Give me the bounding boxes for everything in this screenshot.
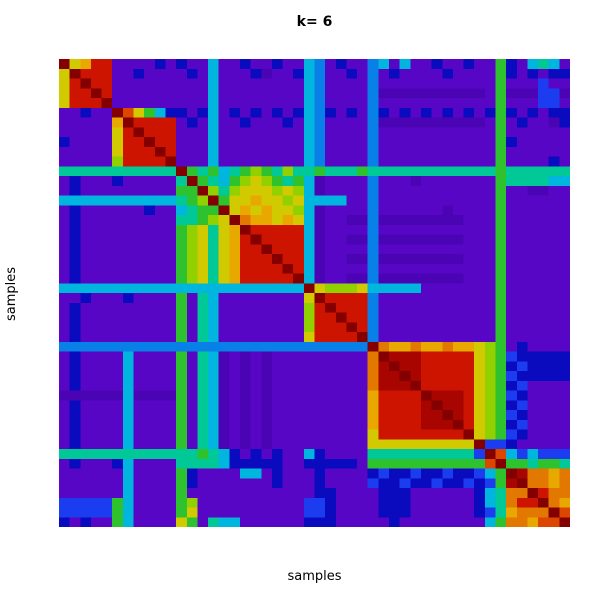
consensus-matrix-heatmap [59, 59, 570, 527]
chart-title: k= 6 [59, 14, 570, 30]
x-axis-label: samples [59, 569, 570, 584]
y-axis-label: samples [4, 60, 20, 528]
consensus-heatmap-figure: k= 6 samples samples [0, 0, 600, 600]
